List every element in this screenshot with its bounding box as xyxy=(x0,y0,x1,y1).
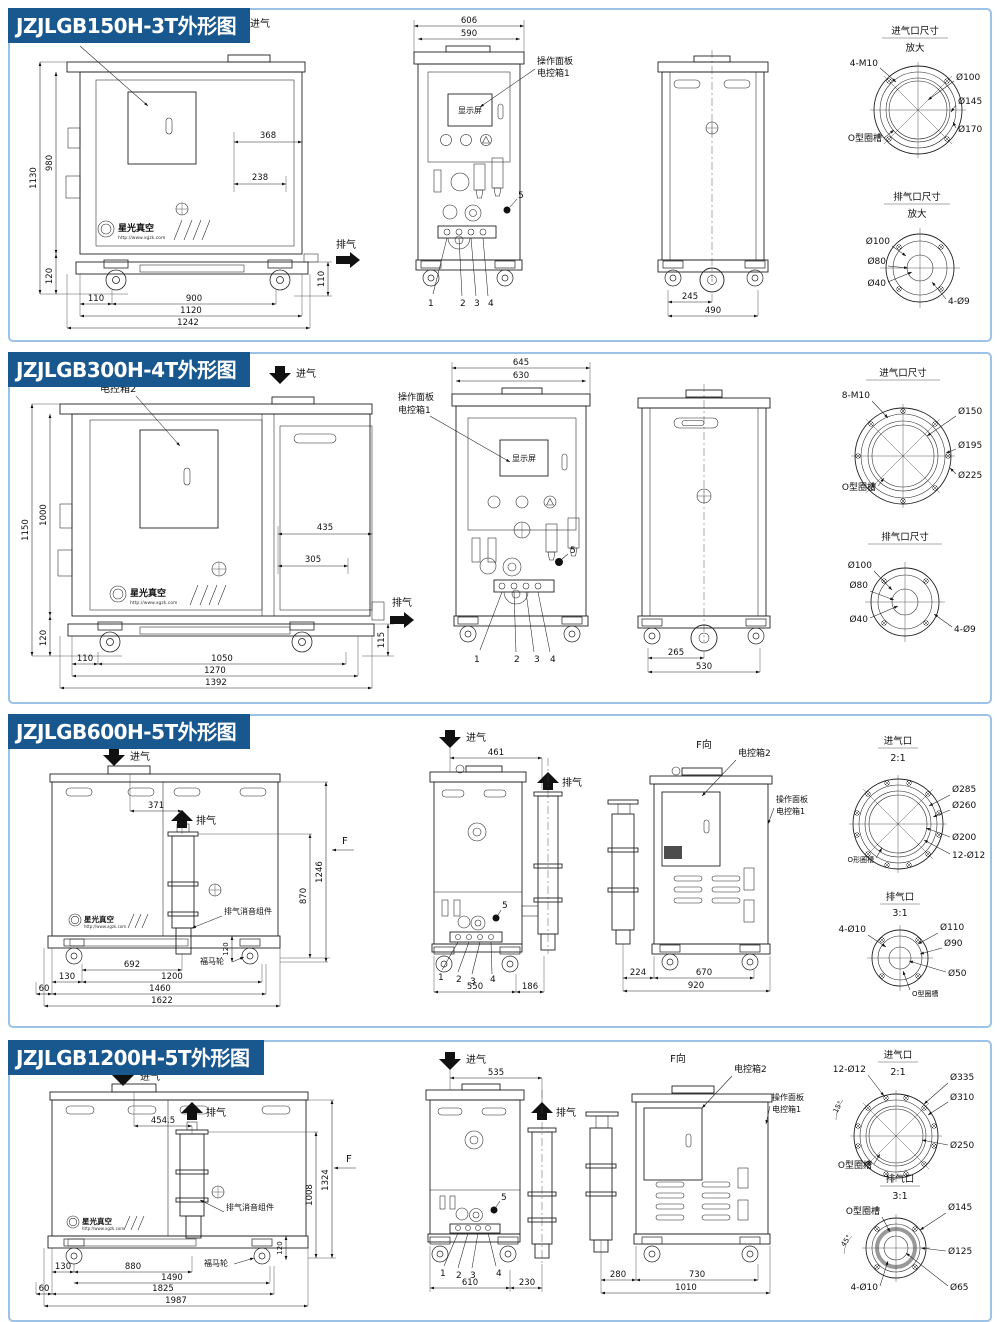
svg-text:110: 110 xyxy=(317,271,327,287)
svg-text:4: 4 xyxy=(550,655,556,665)
svg-text:O型圈槽: O型圈槽 xyxy=(912,989,939,998)
panel-600h: JZJLGB600H-5T外形图 进气 371 排气 星光真空 xyxy=(8,714,992,1028)
middle-view: 进气 535 5 1 2 3 4 6 xyxy=(426,1052,576,1292)
svg-text:进气: 进气 xyxy=(466,1053,486,1066)
drawing-sheet: JZJLGB150H-3T外形图 星光真空 http://www.xgzk.co… xyxy=(0,0,1000,1322)
svg-text:435: 435 xyxy=(317,523,333,533)
intake-port-detail: 进气口 2:1 Ø285 Ø260 Ø200 12-Ø12 O形圈槽 xyxy=(847,735,985,873)
svg-text:2: 2 xyxy=(456,975,462,985)
svg-text:Ø335: Ø335 xyxy=(950,1072,974,1083)
svg-text:3:1: 3:1 xyxy=(892,908,907,919)
svg-text:900: 900 xyxy=(186,294,202,304)
svg-text:排气消音组件: 排气消音组件 xyxy=(224,906,272,916)
svg-text:Ø310: Ø310 xyxy=(950,1092,975,1103)
svg-text:530: 530 xyxy=(696,662,712,672)
panel-150h-title: JZJLGB150H-3T外形图 xyxy=(8,8,250,43)
svg-text:Ø65: Ø65 xyxy=(950,1282,969,1293)
svg-text:星光真空: 星光真空 xyxy=(82,1216,112,1226)
front-view: 进气 371 排气 星光真空 http://www.xgzk.com xyxy=(36,748,354,1006)
svg-text:排气: 排气 xyxy=(392,596,412,609)
svg-text:454.5: 454.5 xyxy=(151,1116,175,1126)
svg-text:O型圈槽: O型圈槽 xyxy=(842,481,876,493)
brand-logo: 星光真空 http://www.xgzk.com xyxy=(110,585,226,606)
svg-text:4: 4 xyxy=(496,1269,502,1279)
svg-text:12-Ø12: 12-Ø12 xyxy=(833,1064,866,1075)
svg-text:进气口: 进气口 xyxy=(884,1049,913,1061)
svg-text:排气: 排气 xyxy=(336,238,356,251)
svg-text:1050: 1050 xyxy=(211,654,233,664)
svg-text:电控箱2: 电控箱2 xyxy=(738,747,771,759)
svg-text:130: 130 xyxy=(59,972,75,982)
svg-text:5: 5 xyxy=(518,191,524,201)
svg-text:1: 1 xyxy=(474,655,480,665)
svg-text:显示屏: 显示屏 xyxy=(512,454,536,463)
svg-text:4: 4 xyxy=(488,299,494,309)
panel-1200h-title: JZJLGB1200H-5T外形图 xyxy=(8,1040,264,1075)
svg-text:1987: 1987 xyxy=(165,1296,187,1306)
panel-1200h-drawing: 进气 454.5 排气 星光真空 http://www.xgzk.com xyxy=(10,1042,986,1316)
svg-text:1000: 1000 xyxy=(39,504,49,526)
svg-text:福马轮: 福马轮 xyxy=(200,956,224,966)
svg-text:电控箱1: 电控箱1 xyxy=(772,1104,801,1114)
svg-text:进气口尺寸: 进气口尺寸 xyxy=(891,25,939,37)
svg-text:920: 920 xyxy=(688,981,704,991)
svg-text:进气口: 进气口 xyxy=(884,735,913,747)
svg-text:15°: 15° xyxy=(832,1100,845,1115)
svg-text:1008: 1008 xyxy=(305,1184,315,1206)
svg-text:Ø170: Ø170 xyxy=(958,124,983,135)
svg-text:5: 5 xyxy=(502,901,508,911)
svg-text:45°: 45° xyxy=(840,1233,854,1248)
panel-300h-title: JZJLGB300H-4T外形图 xyxy=(8,352,250,387)
svg-text:放大: 放大 xyxy=(907,208,927,220)
svg-text:120: 120 xyxy=(222,942,230,955)
svg-text:电控箱1: 电控箱1 xyxy=(776,806,805,816)
svg-text:Ø150: Ø150 xyxy=(958,406,983,417)
svg-text:238: 238 xyxy=(252,173,268,183)
svg-text:F向: F向 xyxy=(696,738,712,751)
exhaust-port-detail: 排气口尺寸 Ø100 Ø80 Ø40 4-Ø9 xyxy=(848,531,976,642)
side-view: 245 490 xyxy=(658,50,768,316)
svg-text:4-Ø10: 4-Ø10 xyxy=(850,1282,878,1293)
svg-text:120: 120 xyxy=(39,630,49,646)
svg-text:排气: 排气 xyxy=(196,814,216,827)
svg-text:2: 2 xyxy=(514,655,520,665)
brand-logo: 星光真空 http://www.xgzk.com xyxy=(98,220,210,241)
svg-text:Ø260: Ø260 xyxy=(952,800,977,811)
svg-text:371: 371 xyxy=(148,801,164,811)
svg-text:Ø40: Ø40 xyxy=(849,614,868,625)
svg-text:Ø80: Ø80 xyxy=(867,256,886,267)
svg-text:245: 245 xyxy=(682,292,698,302)
svg-text:1: 1 xyxy=(438,973,444,983)
svg-text:550: 550 xyxy=(467,982,483,992)
svg-text:1120: 1120 xyxy=(180,306,202,316)
brand-logo: 星光真空 http://www.xgzk.com xyxy=(67,1216,144,1231)
svg-text:2: 2 xyxy=(460,299,466,309)
svg-text:280: 280 xyxy=(610,1270,626,1280)
brand-logo: 星光真空 http://www.xgzk.com xyxy=(69,914,148,929)
front-view: 星光真空 http://www.xgzk.com 1130 980 120 36… xyxy=(29,16,360,328)
svg-text:Ø100: Ø100 xyxy=(866,236,891,247)
svg-text:368: 368 xyxy=(260,131,276,141)
front-view: 进气 454.5 排气 星光真空 http://www.xgzk.com xyxy=(36,1068,356,1306)
svg-text:Ø100: Ø100 xyxy=(848,560,873,571)
svg-text:110: 110 xyxy=(88,294,104,304)
svg-text:870: 870 xyxy=(299,888,309,904)
svg-text:http://www.xgzk.com: http://www.xgzk.com xyxy=(84,924,126,929)
svg-text:操作面板: 操作面板 xyxy=(776,794,808,804)
intake-arrow-icon xyxy=(269,366,291,384)
svg-text:630: 630 xyxy=(513,371,529,381)
svg-text:Ø285: Ø285 xyxy=(952,784,976,795)
middle-view: 进气 461 5 1 2 3 4 5 xyxy=(430,730,582,992)
intake-port-detail: 进气口尺寸 8-M10 Ø150 Ø195 Ø225 O型圈槽 xyxy=(842,367,983,508)
svg-text:4-Ø9: 4-Ø9 xyxy=(948,296,970,307)
svg-text:排气: 排气 xyxy=(206,1106,226,1119)
svg-text:305: 305 xyxy=(305,555,321,565)
svg-text:1010: 1010 xyxy=(675,1283,697,1293)
svg-text:1: 1 xyxy=(440,1269,446,1279)
svg-text:Ø225: Ø225 xyxy=(958,470,982,481)
svg-text:1150: 1150 xyxy=(21,519,31,541)
middle-view: 645 630 显示屏 5 1 xyxy=(398,358,590,665)
svg-text:1242: 1242 xyxy=(177,318,199,328)
svg-text:3: 3 xyxy=(474,299,480,309)
svg-text:3:1: 3:1 xyxy=(892,1191,907,1202)
svg-text:110: 110 xyxy=(77,654,93,664)
svg-text:1324: 1324 xyxy=(321,1169,331,1191)
panel-150h: JZJLGB150H-3T外形图 星光真空 http://www.xgzk.co… xyxy=(8,8,992,342)
svg-text:2:1: 2:1 xyxy=(890,753,905,764)
svg-text:Ø250: Ø250 xyxy=(950,1140,975,1151)
svg-text:Ø200: Ø200 xyxy=(952,832,977,843)
svg-text:操作面板: 操作面板 xyxy=(537,55,573,67)
svg-text:230: 230 xyxy=(519,1278,535,1288)
svg-text:http://www.xgzk.com: http://www.xgzk.com xyxy=(118,235,165,241)
f-direction-view: F向 电控箱2 操作面板 电控箱1 224 6 xyxy=(608,738,808,991)
svg-text:120: 120 xyxy=(45,268,55,284)
svg-text:980: 980 xyxy=(45,155,55,171)
svg-text:1622: 1622 xyxy=(151,996,173,1006)
exhaust-arrow-icon xyxy=(336,252,360,268)
svg-text:1130: 1130 xyxy=(29,167,39,189)
svg-text:排气口尺寸: 排气口尺寸 xyxy=(881,531,929,543)
svg-text:O型圈槽: O型圈槽 xyxy=(838,1159,872,1171)
svg-text:60: 60 xyxy=(39,1284,50,1294)
panel-1200h: JZJLGB1200H-5T外形图 进气 454.5 排气 星光真 xyxy=(8,1040,992,1322)
svg-text:Ø100: Ø100 xyxy=(956,72,981,83)
svg-text:电控箱2: 电控箱2 xyxy=(734,1063,767,1075)
svg-text:4-Ø9: 4-Ø9 xyxy=(954,624,976,635)
svg-text:http://www.xgzk.com: http://www.xgzk.com xyxy=(82,1226,124,1231)
svg-text:Ø90: Ø90 xyxy=(944,938,963,949)
svg-text:进气: 进气 xyxy=(130,750,150,763)
svg-text:490: 490 xyxy=(705,306,721,316)
svg-text:Ø195: Ø195 xyxy=(958,440,982,451)
svg-text:224: 224 xyxy=(630,968,646,978)
svg-text:730: 730 xyxy=(689,1270,705,1280)
svg-text:880: 880 xyxy=(125,1262,141,1272)
svg-text:Ø80: Ø80 xyxy=(849,580,868,591)
svg-text:4-Ø10: 4-Ø10 xyxy=(838,924,866,935)
svg-text:电控箱1: 电控箱1 xyxy=(398,404,431,416)
svg-text:放大: 放大 xyxy=(905,42,925,54)
svg-text:115: 115 xyxy=(377,632,387,648)
intake-arrow-icon xyxy=(439,1052,461,1070)
svg-text:5: 5 xyxy=(570,546,576,556)
svg-text:操作面板: 操作面板 xyxy=(398,391,434,403)
svg-text:535: 535 xyxy=(488,1068,504,1078)
svg-text:排气: 排气 xyxy=(556,1106,576,1119)
svg-text:F: F xyxy=(342,836,348,847)
exhaust-arrow-icon xyxy=(390,612,414,628)
svg-text:1: 1 xyxy=(428,299,434,309)
svg-text:3: 3 xyxy=(534,655,540,665)
svg-text:Ø110: Ø110 xyxy=(940,922,965,933)
svg-text:1825: 1825 xyxy=(152,1284,174,1294)
f-direction-view: F向 电控箱2 操作面板 电控箱1 280 730 xyxy=(586,1052,804,1293)
svg-text:排气口: 排气口 xyxy=(886,891,915,903)
exhaust-port-detail: 排气口尺寸 放大 Ø100 Ø80 Ø40 4-Ø9 xyxy=(866,191,970,308)
exhaust-arrow-icon xyxy=(181,1102,203,1120)
svg-text:130: 130 xyxy=(55,1262,71,1272)
svg-text:星光真空: 星光真空 xyxy=(84,914,114,924)
svg-text:12-Ø12: 12-Ø12 xyxy=(952,850,985,861)
intake-port-detail: 进气口 2:1 12-Ø12 15° Ø335 Ø310 Ø250 O型圈槽 xyxy=(832,1049,975,1182)
svg-text:Ø145: Ø145 xyxy=(958,96,982,107)
svg-text:进气: 进气 xyxy=(296,367,316,380)
svg-text:670: 670 xyxy=(696,968,712,978)
svg-text:进气: 进气 xyxy=(466,731,486,744)
svg-text:1490: 1490 xyxy=(161,1273,183,1283)
svg-text:Ø40: Ø40 xyxy=(867,278,886,289)
svg-text:星光真空: 星光真空 xyxy=(118,222,154,234)
intake-arrow-icon xyxy=(439,730,461,748)
intake-port-detail: 进气口尺寸 放大 4-M10 Ø100 Ø145 Ø170 O型圈槽 xyxy=(848,25,983,158)
svg-text:F: F xyxy=(346,1154,352,1165)
middle-view: 606 590 显示屏 5 1 xyxy=(414,16,573,309)
svg-text:排气口尺寸: 排气口尺寸 xyxy=(893,191,941,203)
svg-text:461: 461 xyxy=(488,748,504,758)
svg-text:590: 590 xyxy=(461,29,477,39)
svg-text:O型圈槽: O型圈槽 xyxy=(848,132,882,144)
svg-text:186: 186 xyxy=(522,982,538,992)
svg-text:星光真空: 星光真空 xyxy=(130,587,166,599)
svg-text:692: 692 xyxy=(124,960,140,970)
front-view: 星光真空 http://www.xgzk.com 1150 1000 120 4… xyxy=(21,366,414,688)
svg-text:排气口: 排气口 xyxy=(886,1173,915,1185)
svg-text:2:1: 2:1 xyxy=(890,1067,905,1078)
svg-text:排气: 排气 xyxy=(562,776,582,789)
svg-text:Ø50: Ø50 xyxy=(948,968,967,979)
panel-300h-drawing: 星光真空 http://www.xgzk.com 1150 1000 120 4… xyxy=(10,354,986,698)
svg-text:1200: 1200 xyxy=(161,972,183,982)
svg-text:显示屏: 显示屏 xyxy=(458,106,482,115)
intake-arrow-icon xyxy=(103,748,125,766)
exhaust-port-detail: 排气口 3:1 4-Ø10 Ø110 Ø90 Ø50 O型圈槽 xyxy=(838,891,966,998)
svg-text:610: 610 xyxy=(462,1278,478,1288)
svg-text:进气: 进气 xyxy=(250,17,270,30)
svg-text:Ø145: Ø145 xyxy=(948,1202,972,1213)
svg-text:Ø125: Ø125 xyxy=(948,1246,972,1257)
panel-600h-drawing: 进气 371 排气 星光真空 http://www.xgzk.com xyxy=(10,716,986,1022)
svg-text:1392: 1392 xyxy=(205,678,227,688)
side-view: 265 530 xyxy=(638,384,770,672)
svg-text:1270: 1270 xyxy=(204,666,226,676)
svg-text:5: 5 xyxy=(501,1193,507,1203)
panel-150h-drawing: 星光真空 http://www.xgzk.com 1130 980 120 36… xyxy=(10,10,986,336)
svg-text:O型圈槽: O型圈槽 xyxy=(846,1205,880,1217)
svg-text:4-M10: 4-M10 xyxy=(850,59,878,69)
exhaust-port-detail: 排气口 3:1 O型圈槽 45° Ø145 Ø125 4-Ø10 Ø65 xyxy=(840,1173,973,1293)
svg-text:606: 606 xyxy=(461,16,477,26)
exhaust-arrow-icon xyxy=(171,810,193,828)
panel-600h-title: JZJLGB600H-5T外形图 xyxy=(8,714,250,749)
svg-text:645: 645 xyxy=(513,358,529,368)
svg-text:操作面板: 操作面板 xyxy=(772,1092,804,1102)
svg-text:120: 120 xyxy=(276,1241,284,1254)
svg-text:排气消音组件: 排气消音组件 xyxy=(226,1202,274,1212)
svg-text:60: 60 xyxy=(39,984,50,994)
panel-300h: JZJLGB300H-4T外形图 星光真空 http://www.xgzk.co… xyxy=(8,352,992,704)
svg-text:1460: 1460 xyxy=(149,984,171,994)
svg-text:福马轮: 福马轮 xyxy=(204,1258,228,1268)
svg-text:进气口尺寸: 进气口尺寸 xyxy=(879,367,927,379)
svg-text:8-M10: 8-M10 xyxy=(842,391,870,401)
svg-text:265: 265 xyxy=(668,648,684,658)
svg-text:2: 2 xyxy=(456,1271,462,1281)
svg-text:http://www.xgzk.com: http://www.xgzk.com xyxy=(130,600,177,606)
svg-text:4: 4 xyxy=(490,975,496,985)
svg-text:O形圈槽: O形圈槽 xyxy=(847,855,874,864)
svg-text:电控箱1: 电控箱1 xyxy=(537,67,570,79)
svg-text:1246: 1246 xyxy=(315,861,325,883)
svg-text:F向: F向 xyxy=(670,1052,686,1065)
